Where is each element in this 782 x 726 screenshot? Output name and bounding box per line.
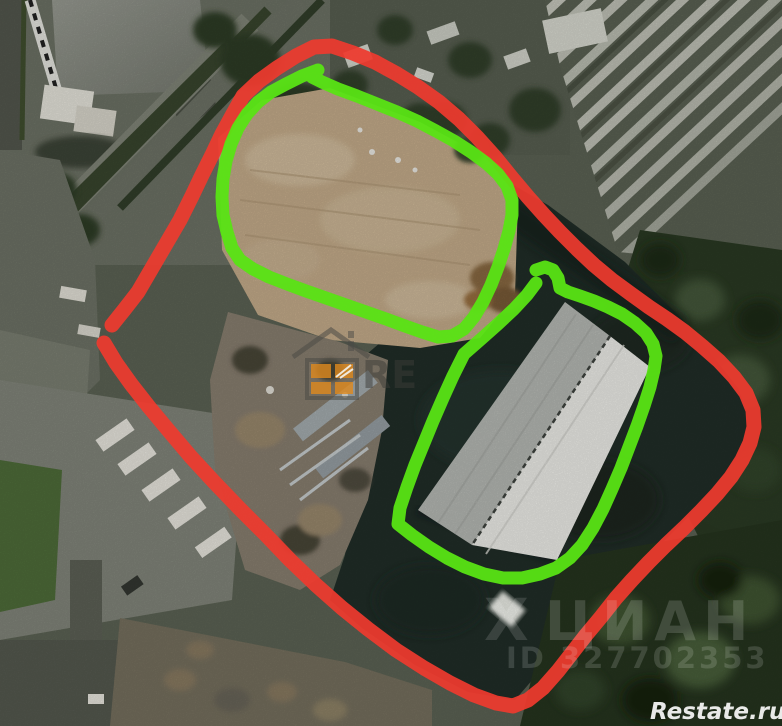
aerial-photo-listing-image: RE Х ЦИАН ID 327702353 Restate.ru [0, 0, 782, 726]
listing-id-watermark: ID 327702353 [506, 641, 769, 675]
restate-url-watermark: Restate.ru [650, 699, 782, 725]
cian-watermark: Х ЦИАН ID 327702353 [484, 586, 769, 675]
satellite-photo: RE Х ЦИАН ID 327702353 Restate.ru [0, 0, 782, 726]
restate-logo-text: RE [362, 353, 417, 397]
